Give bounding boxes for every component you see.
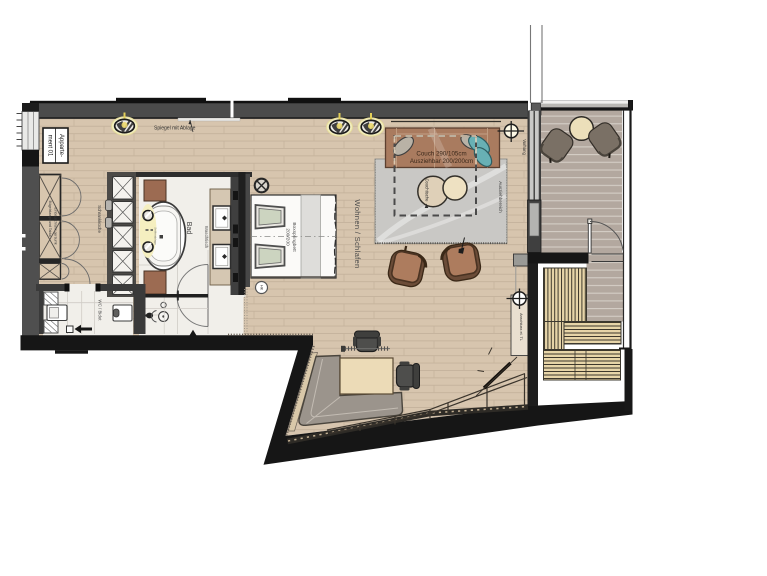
svg-text:Ausziehbar 200/200cm: Ausziehbar 200/200cm: [410, 158, 473, 165]
svg-text:Seifenablage: Seifenablage: [154, 227, 158, 245]
svg-text:Bügelstange und Tablar: Bügelstange und Tablar: [48, 201, 52, 239]
svg-text:200/200: 200/200: [285, 228, 291, 246]
svg-text:Apparte-: Apparte-: [58, 134, 64, 157]
svg-text:Schrankküche: Schrankküche: [97, 205, 102, 233]
svg-text:WC / Bidet: WC / Bidet: [97, 300, 102, 322]
svg-text:Boxspringbett: Boxspringbett: [291, 222, 297, 252]
svg-text:Einbauschrank geräumt: Einbauschrank geräumt: [54, 208, 58, 245]
svg-text:Couch 290/105cm: Couch 290/105cm: [416, 151, 466, 158]
svg-text:Bad: Bad: [185, 222, 192, 235]
svg-text:Anschluss el. TL: Anschluss el. TL: [519, 313, 523, 341]
svg-text:Spiegel mit Ablage: Spiegel mit Ablage: [154, 126, 196, 132]
svg-text:Couchtische: Couchtische: [424, 178, 429, 202]
svg-text:Waschtisch: Waschtisch: [204, 226, 209, 249]
svg-text:Ausziehbereich: Ausziehbereich: [498, 181, 503, 213]
svg-text:ment 01: ment 01: [46, 135, 52, 157]
svg-text:Vorhang: Vorhang: [522, 139, 527, 155]
svg-text:HK: HK: [259, 285, 264, 291]
svg-text:Wohnen / Schlafen: Wohnen / Schlafen: [353, 199, 362, 268]
